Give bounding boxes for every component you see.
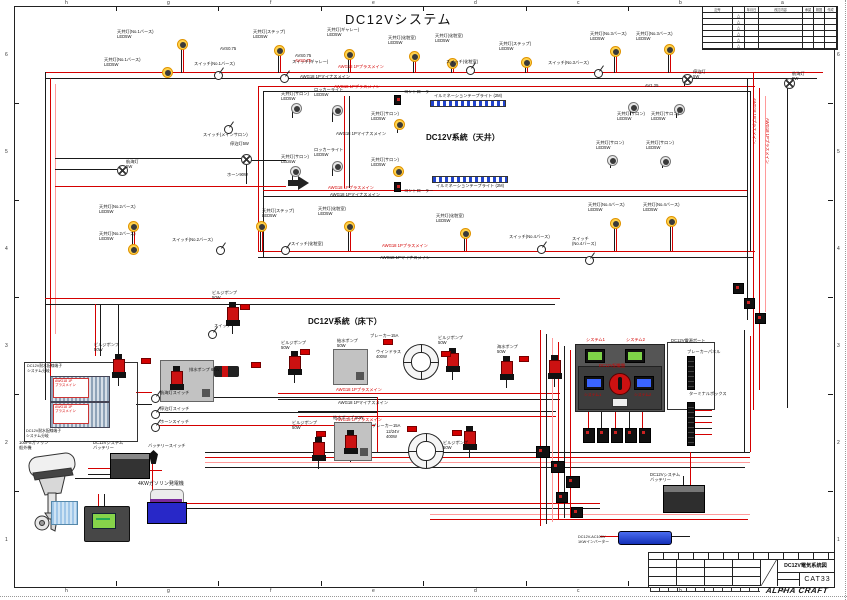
fuse-icon — [407, 426, 417, 432]
lamp-label: 天井灯(サロン) LED5W — [596, 140, 624, 151]
grid-number: 3 — [5, 343, 8, 349]
lamp-label: 天井灯(化粧室) LED5W — [388, 35, 416, 46]
lamp-label: 停泊灯5W — [230, 141, 249, 146]
ceiling-lamp-icon — [660, 156, 671, 167]
text-label: AWG18 1Pマイナスメイン — [380, 255, 430, 260]
lamp-label: 天井灯(サロン) LED5W — [281, 154, 309, 165]
lamp-label: 天井灯(ステップ) LED5W — [253, 29, 285, 40]
text-label: 排水ポンプ 60W — [189, 367, 220, 372]
ceiling-lamp-icon — [610, 46, 621, 57]
equipment-panel — [333, 349, 368, 385]
ceiling-lamp-icon — [241, 154, 252, 165]
grid-number: 5 — [837, 149, 840, 155]
switch-icon — [151, 423, 160, 432]
grid-number: 4 — [837, 246, 840, 252]
ceiling-lamp-icon — [607, 155, 618, 166]
relay-block-icon — [556, 492, 568, 503]
text-label: 12/24V 400W — [386, 429, 399, 440]
text-label: AWG18 1Pプラスメイン — [752, 98, 757, 144]
breaker-panel-strip — [687, 356, 695, 390]
switch-icon — [216, 246, 225, 255]
text-label: 海水ポンプ 50W — [497, 344, 518, 355]
grid-number: 4 — [5, 246, 8, 252]
system-battery-right — [663, 485, 705, 513]
text-label: ウインドラス 400W — [376, 349, 401, 360]
fuse-icon — [316, 431, 326, 437]
revision-cell — [814, 43, 825, 49]
ceiling-lamp-icon — [291, 103, 302, 114]
text-label: DC12V系統（天井） — [426, 133, 500, 143]
ceiling-lamp-icon — [162, 67, 173, 78]
text-label: 給水ポンプ 50W — [333, 415, 364, 420]
revision-cell — [745, 43, 759, 49]
relay-block-icon — [639, 428, 651, 443]
revision-cell — [825, 43, 837, 49]
title-block-diagonal-cell — [761, 559, 778, 586]
lamp-label: 天井灯(サロン) LED5W — [646, 140, 674, 151]
ceiling-lamp-icon — [610, 218, 621, 229]
switch-label: スイッチ(化粧室) — [291, 241, 323, 246]
text-label: コントローラー — [404, 188, 433, 193]
text-label: コントローラー — [404, 89, 433, 94]
page-edge-bottom — [0, 596, 847, 597]
text-label: システム2 — [634, 393, 651, 398]
switch-label: ホーンスイッチ — [160, 419, 189, 424]
text-label: DC12V配電盤 — [599, 363, 625, 368]
text-label: バッテリースイッチ — [148, 443, 185, 448]
grid-letter: d — [474, 0, 477, 6]
ceiling-lamp-icon — [664, 44, 675, 55]
lamp-label: 天井灯(No.3バース) LED5W — [590, 31, 627, 42]
pump-icon — [112, 354, 126, 379]
text-label: ビルジポンプ 50W — [212, 290, 237, 301]
grid-letter: d — [474, 588, 477, 594]
page-edge-right — [845, 0, 846, 600]
text-label: ビルジポンプ 50W — [281, 340, 306, 351]
pump-icon — [312, 437, 326, 462]
switch-icon — [151, 410, 160, 419]
switch-label: スイッチ(No.3バース) — [548, 60, 589, 65]
text-label: 100PSガソリン 船外機 — [19, 440, 48, 451]
revision-mark: △ — [733, 43, 745, 49]
ceiling-lamp-icon — [460, 228, 471, 239]
windlass-motor-icon — [403, 344, 439, 380]
grid-letter: g — [167, 0, 170, 6]
relay-block-icon — [611, 428, 623, 443]
revision-table: 記号年月日改訂内容承認検図作成△△△△△△ — [702, 6, 838, 50]
relay-block-icon — [597, 428, 609, 443]
revision-cell — [759, 43, 803, 49]
grid-number: 5 — [5, 149, 8, 155]
grid-number: 6 — [837, 52, 840, 58]
lamp-label: 天井灯(ステップ) LED5W — [262, 208, 294, 219]
text-label: システム1 — [584, 393, 601, 398]
grid-letter: f — [270, 0, 271, 6]
switch-icon — [594, 69, 603, 78]
tape-light-bar — [432, 176, 508, 183]
grid-number: 3 — [837, 343, 840, 349]
grid-letter: h — [65, 0, 68, 6]
switch-label: 航海灯スイッチ — [160, 390, 189, 395]
horn-icon — [288, 180, 298, 186]
relay-block-icon — [551, 461, 565, 473]
text-label: AWG18 1Pプラスメイン — [328, 185, 374, 190]
text-label: ビルジポンプ 50W — [443, 440, 468, 451]
grid-letter: c — [577, 588, 580, 594]
system1-meter-lcd — [585, 349, 605, 363]
lamp-label: 天井灯(化粧室) LED5W — [318, 206, 346, 217]
text-label: ブレーカー15A — [372, 423, 400, 428]
text-label: DC12V電源ポート — [671, 338, 705, 343]
lamp-label: 天井灯(化粧室) LED5W — [435, 33, 463, 44]
ceiling-lamp-icon — [332, 105, 343, 116]
relay-block-icon — [394, 95, 401, 105]
switch-label: スイッチ(化粧室) — [446, 59, 478, 64]
fuse-icon — [441, 351, 451, 357]
ceiling-lamp-icon — [521, 57, 532, 68]
switch-icon — [466, 66, 475, 75]
text-label: AV1.25 — [645, 83, 658, 88]
lamp-label: 天井灯(No.4バース) LED5W — [588, 202, 625, 213]
switch-label: スイッチ — [214, 323, 231, 328]
text-label: ブレーカー15A — [370, 333, 398, 338]
system1-voltmeter-lcd — [584, 376, 604, 390]
relay-block-icon — [571, 507, 583, 518]
title-block: DC12V電気系統図 CAT33 — [648, 552, 835, 588]
text-label: AWG18 1Pマイナスメイン — [330, 192, 380, 197]
fuse-icon — [251, 362, 261, 368]
ceiling-lamp-icon — [344, 221, 355, 232]
text-label: AWG18 1Pプラスメイン — [338, 64, 384, 69]
text-label: ブレーカーパネル — [687, 349, 720, 354]
lamp-label: 天井灯(サロン) LED5W — [651, 111, 679, 122]
relay-block-icon — [625, 428, 637, 443]
lamp-label: 天井灯(No.2バース) LED5W — [99, 231, 136, 242]
lamp-label: ロッカーライト LED5W — [314, 147, 343, 158]
text-label: DC12V-AC100V 1KWインバーター — [578, 535, 609, 544]
grid-letter: b — [679, 0, 682, 6]
text-label: ビルジポンプ 50W — [438, 335, 463, 346]
model-number: CAT33 — [799, 572, 835, 586]
windlass-motor-icon — [408, 433, 444, 469]
grid-number: 2 — [837, 440, 840, 446]
battery-charger-panel — [84, 506, 130, 542]
text-label: 給水ポンプ 50W — [337, 338, 358, 349]
text-label: AWG18 1Pマイナスメイン — [338, 400, 388, 405]
text-label: ビルジポンプ 50W — [292, 420, 317, 431]
ceiling-lamp-icon — [682, 74, 693, 85]
lamp-label: 天井灯(サロン) LED5W — [371, 111, 399, 122]
fuse-icon — [519, 356, 529, 362]
text-label: AWG18 1P プラスメイン — [55, 379, 76, 388]
text-label: DC12V系統（床下） — [308, 317, 382, 327]
grid-letter: f — [270, 588, 271, 594]
system2-meter-lcd — [625, 349, 645, 363]
generator-stripe — [150, 499, 182, 502]
revision-cell — [703, 43, 733, 49]
lamp-label: 天井灯(サロン) LED5W — [281, 91, 309, 102]
fuse-icon — [141, 358, 151, 364]
switch-icon — [208, 330, 217, 339]
text-label: DC12Vシステム バッテリー — [93, 440, 123, 451]
text-label: AWG18 1Pマイナスメイン — [336, 131, 386, 136]
ceiling-lamp-icon — [666, 216, 677, 227]
lamp-label: 天井灯(化粧室) LED5W — [436, 213, 464, 224]
text-label: AWG18 1Pプラスメイン — [336, 387, 382, 392]
builder-logo: ALPHA CRAFT — [765, 586, 828, 595]
relay-block-icon — [583, 428, 595, 443]
switch-label: スイッチ (No.4バース) — [572, 236, 596, 247]
relay-block-icon — [755, 313, 766, 324]
ceiling-lamp-icon — [128, 244, 139, 255]
ceiling-lamp-icon — [393, 166, 404, 177]
lamp-label: 天井灯(ギャレー) LED5W — [327, 27, 359, 38]
text-label: イルミネーションテープライト (2M) — [434, 93, 502, 98]
relay-block-icon — [733, 283, 744, 294]
switch-label: スイッチ(No.4バース) — [509, 234, 550, 239]
pump-icon — [344, 430, 358, 455]
grid-letter: c — [577, 0, 580, 6]
switch-icon — [151, 394, 160, 403]
scale-bar — [650, 587, 760, 592]
relay-block-icon — [394, 182, 401, 192]
title-block-small-cells — [777, 572, 799, 586]
text-label: DC12Vシステム バッテリー — [650, 472, 680, 483]
lamp-label: 天井灯(ステップ) LED5W — [499, 41, 531, 52]
system2-voltmeter-lcd — [634, 376, 654, 390]
switch-label: スイッチ(メインサロン) — [203, 132, 248, 137]
lamp-label: 天井灯(サロン) LED5W — [371, 157, 399, 168]
switch-icon — [214, 71, 223, 80]
text-label: AWG18 1Pプラスメイン — [382, 243, 428, 248]
text-label: AVS0.75 — [295, 58, 311, 63]
text-label: システム1 — [586, 337, 605, 342]
text-label: DC12V耐水配線端子 システム分岐 — [27, 364, 62, 373]
switch-label: スイッチ(No.1バース) — [194, 61, 235, 66]
pump-icon — [500, 356, 514, 381]
text-label: ビルジポンプ 50W — [94, 342, 119, 353]
text-label: AWG18 1Pマイナスメイン — [300, 74, 350, 79]
grid-letter: h — [65, 588, 68, 594]
grid-number: 6 — [5, 52, 8, 58]
text-label: AWG18 1Pプラスメイン — [765, 118, 770, 164]
lamp-label: 天井灯(No.3バース) LED5W — [636, 31, 673, 42]
panel-terminal-box — [612, 398, 628, 407]
fuse-icon — [240, 304, 250, 310]
switch-label: 停泊灯スイッチ — [160, 406, 189, 411]
lamp-label: 天井灯(No.2バース) LED5W — [99, 204, 136, 215]
switch-icon — [585, 256, 594, 265]
generator-base — [147, 502, 187, 524]
lamp-label: 航海灯 5W — [126, 159, 139, 170]
switch-icon — [537, 245, 546, 254]
lamp-label: 天井灯(No.1バース) LED5W — [104, 57, 141, 68]
ceiling-lamp-icon — [274, 45, 285, 56]
ceiling-lamp-icon — [332, 161, 343, 172]
text-label: DC12V耐水配線端子 システム分岐 — [26, 429, 61, 438]
switch-label: スイッチ(No.2バース) — [172, 237, 213, 242]
text-label: AVS0.75 — [220, 46, 236, 51]
lamp-label: 天井灯(No.4バース) LED5W — [643, 202, 680, 213]
tape-light-bar — [430, 100, 506, 107]
ceiling-lamp-icon — [344, 49, 355, 60]
text-label: システム2 — [626, 337, 645, 342]
text-label: AWG18 1Pプラスメイン — [334, 84, 380, 89]
relay-block-icon — [536, 446, 550, 458]
relay-block-icon — [566, 476, 580, 488]
ceiling-lamp-icon — [409, 51, 420, 62]
text-label: ホーン90W — [227, 172, 248, 177]
grid-letter: e — [372, 588, 375, 594]
schematic-page: DC12Vシステム 記号年月日改訂内容承認検図作成△△△△△△ — [0, 0, 847, 600]
grid-number: 2 — [5, 440, 8, 446]
page-title: DC12Vシステム — [345, 9, 452, 28]
pump-icon — [548, 355, 562, 380]
relay-block-icon — [744, 298, 755, 309]
fuel-tank-box — [51, 501, 78, 525]
ceiling-lamp-icon — [177, 39, 188, 50]
fuse-icon — [452, 430, 462, 436]
inverter — [618, 531, 672, 545]
pump-icon — [170, 366, 184, 391]
text-label: 4KWガソリン発電機 — [138, 481, 184, 487]
text-label: ターミナルボックス — [689, 391, 727, 396]
title-block-grid — [649, 559, 761, 586]
ceiling-lamp-icon — [256, 221, 267, 232]
text-label: イルミネーションテープライト (2M) — [436, 183, 504, 188]
grid-number: 1 — [837, 537, 840, 543]
lamp-label: 天井灯(サロン) LED5W — [617, 111, 645, 122]
system-battery-main — [110, 453, 150, 479]
revision-cell — [803, 43, 814, 49]
switch-icon — [280, 74, 289, 83]
grid-number: 1 — [5, 537, 8, 543]
battery-selector-rotary-switch — [609, 373, 631, 395]
switch-icon — [281, 246, 290, 255]
grid-letter: g — [167, 588, 170, 594]
fuse-icon — [383, 339, 393, 345]
grid-letter: e — [372, 0, 375, 6]
lamp-label: 停泊灯 5W — [693, 69, 706, 80]
dc12v-distribution-panel — [575, 344, 665, 412]
terminal-box-strip — [687, 402, 695, 446]
lamp-label: 航海灯 5W — [792, 71, 805, 82]
charger-lcd-screen — [92, 513, 116, 529]
text-label: AWG18 1P プラスメイン — [55, 405, 76, 414]
drawing-title: DC12V電気系統図 — [777, 559, 834, 573]
lamp-label: 天井灯(No.1バース) LED5W — [117, 29, 154, 40]
